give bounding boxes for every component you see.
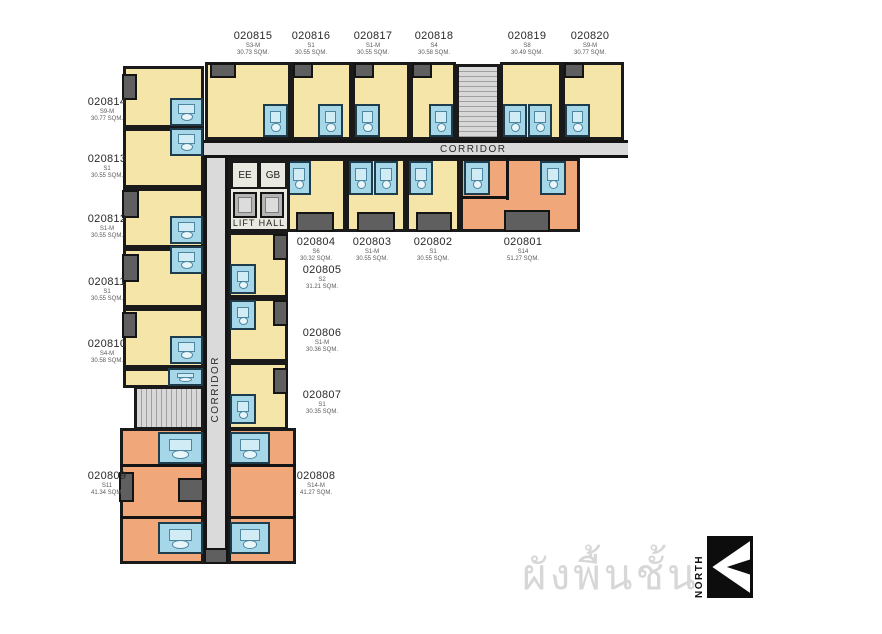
balcony (416, 212, 452, 232)
unit-id: 020820 (545, 30, 635, 43)
unit-label-020806: 020806S1-M30.36 SQM. (277, 327, 367, 353)
unit-label-020801: 020801S1451.27 SQM. (478, 236, 568, 262)
unit-label-020818: 020818S430.58 SQM. (389, 30, 479, 56)
unit-area: 30.77 SQM. (62, 116, 152, 123)
north-badge: NORTH (694, 536, 753, 598)
unit-type: S14-M (271, 483, 361, 490)
stairwell (456, 64, 500, 140)
balcony (354, 63, 374, 78)
bathroom (503, 104, 527, 137)
lift-hall-label: LIFT HALL (209, 218, 309, 228)
unit-label-020812: 020812S1-M30.55 SQM. (62, 213, 152, 239)
unit-area: 30.55 SQM. (62, 173, 152, 180)
bathroom (429, 104, 453, 137)
bathroom (158, 432, 203, 464)
unit-label-020810: 020810S4-M30.58 SQM. (62, 338, 152, 364)
bathroom (355, 104, 380, 137)
unit-type: S2 (277, 277, 367, 284)
unit-id: 020804 (271, 236, 361, 249)
unit-type: S1 (277, 402, 367, 409)
unit-id: 020801 (478, 236, 568, 249)
bathroom (230, 522, 270, 554)
unit-label-020814: 020814S9-M30.77 SQM. (62, 96, 152, 122)
bathroom (230, 432, 270, 464)
bathroom (170, 216, 203, 244)
unit-area: 30.32 SQM. (271, 256, 361, 263)
unit-type: S1-M (62, 226, 152, 233)
unit-area: 30.55 SQM. (62, 233, 152, 240)
bathroom (540, 161, 566, 195)
balcony (273, 300, 288, 326)
wall (228, 516, 296, 519)
unit-type: S6 (271, 249, 361, 256)
balcony (564, 63, 584, 78)
unit-type: S4-M (62, 351, 152, 358)
bathroom (528, 104, 552, 137)
unit-id: 020813 (62, 153, 152, 166)
unit-area: 41.34 SQM. (62, 490, 152, 497)
unit-id: 020808 (271, 470, 361, 483)
corridor-top: CORRIDOR (204, 140, 628, 158)
wall (460, 196, 508, 199)
unit-area: 30.35 SQM. (277, 409, 367, 416)
unit-area: 30.58 SQM. (389, 50, 479, 57)
unit-id: 020810 (62, 338, 152, 351)
unit-label-020807: 020807S130.35 SQM. (277, 389, 367, 415)
bathroom (168, 368, 203, 386)
unit-type: S1 (62, 289, 152, 296)
unit-type: S11 (62, 483, 152, 490)
unit-type: S1 (62, 166, 152, 173)
room-gb: GB (259, 161, 287, 189)
wall (120, 464, 204, 467)
wall (120, 516, 204, 519)
wall (506, 158, 509, 200)
bathroom (230, 300, 256, 330)
unit-area: 51.27 SQM. (478, 256, 568, 263)
balcony (504, 210, 550, 232)
balcony (357, 212, 395, 232)
balcony (178, 478, 204, 502)
unit-label-020805: 020805S231.21 SQM. (277, 264, 367, 290)
unit-type: S4 (389, 43, 479, 50)
unit-area: 31.21 SQM. (277, 284, 367, 291)
unit-id: 020807 (277, 389, 367, 402)
unit-id: 020814 (62, 96, 152, 109)
unit-label-020808: 020808S14-M41.27 SQM. (271, 470, 361, 496)
bathroom (170, 336, 203, 364)
unit-area: 30.58 SQM. (62, 358, 152, 365)
bathroom (464, 161, 490, 195)
unit-label-020813: 020813S130.55 SQM. (62, 153, 152, 179)
balcony (412, 63, 432, 78)
lift-shaft (260, 192, 284, 218)
unit-label-020820: 020820S9-M30.77 SQM. (545, 30, 635, 56)
unit-area: 30.36 SQM. (277, 347, 367, 354)
bathroom (230, 394, 256, 424)
unit-type: S14 (478, 249, 568, 256)
balcony (210, 63, 236, 78)
bathroom (170, 128, 203, 156)
balcony (204, 548, 228, 564)
bathroom (374, 161, 398, 195)
bathroom (349, 161, 373, 195)
unit-id: 020806 (277, 327, 367, 340)
north-arrow-glyph (710, 540, 750, 594)
bathroom (170, 98, 203, 126)
floor-plan: CORRIDOR CORRIDOR EE GB LIFT HALL 020801… (0, 0, 882, 634)
unit-type: S9-M (62, 109, 152, 116)
unit-id: 020809 (62, 470, 152, 483)
lift-shaft (233, 192, 257, 218)
unit-id: 020805 (277, 264, 367, 277)
unit-label-020809: 020809S1141.34 SQM. (62, 470, 152, 496)
bathroom (170, 246, 203, 274)
wall (228, 464, 296, 467)
unit-id: 020812 (62, 213, 152, 226)
bathroom (263, 104, 288, 137)
unit-id: 020818 (389, 30, 479, 43)
balcony (293, 63, 313, 78)
bathroom (409, 161, 433, 195)
room-ee: EE (231, 161, 259, 189)
stairwell (134, 386, 204, 430)
bathroom (565, 104, 590, 137)
unit-area: 30.77 SQM. (545, 50, 635, 57)
north-label: NORTH (694, 536, 705, 598)
unit-type: S1-M (277, 340, 367, 347)
unit-type: S9-M (545, 43, 635, 50)
bathroom (318, 104, 343, 137)
unit-label-020804: 020804S630.32 SQM. (271, 236, 361, 262)
north-arrow-icon (707, 536, 753, 598)
balcony (122, 312, 137, 338)
bathroom (230, 264, 256, 294)
unit-area: 30.55 SQM. (62, 296, 152, 303)
unit-area: 41.27 SQM. (271, 490, 361, 497)
unit-label-020811: 020811S130.55 SQM. (62, 276, 152, 302)
corridor-top-label: CORRIDOR (440, 144, 506, 155)
unit-id: 020811 (62, 276, 152, 289)
lift-hall: EE GB LIFT HALL (228, 158, 290, 232)
bathroom (287, 161, 311, 195)
bathroom (158, 522, 203, 554)
corridor-left-label: CORRIDOR (210, 356, 221, 422)
